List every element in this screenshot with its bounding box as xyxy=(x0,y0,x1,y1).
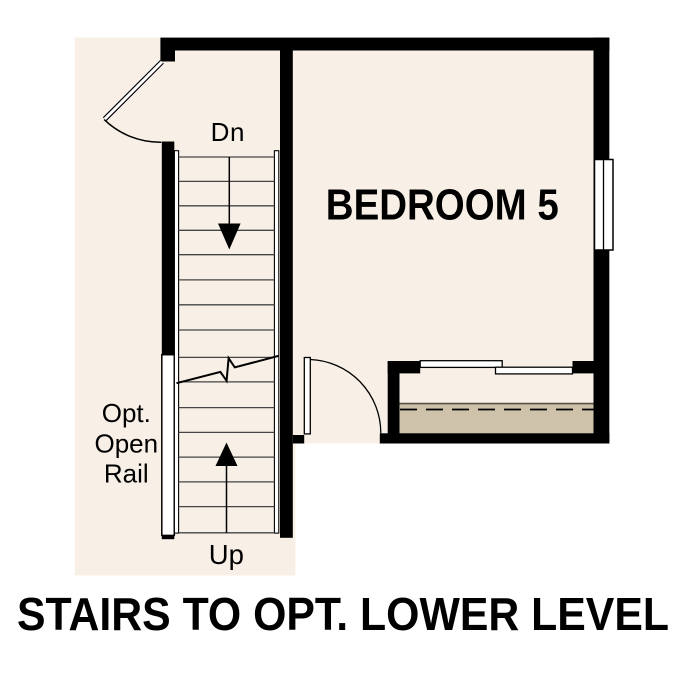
svg-text:Dn: Dn xyxy=(211,117,245,147)
svg-text:Open: Open xyxy=(94,429,158,459)
svg-text:Opt.: Opt. xyxy=(102,398,151,428)
svg-text:Up: Up xyxy=(209,539,244,570)
svg-text:Rail: Rail xyxy=(104,458,149,488)
svg-text:BEDROOM 5: BEDROOM 5 xyxy=(326,182,559,230)
svg-text:STAIRS TO OPT. LOWER LEVEL: STAIRS TO OPT. LOWER LEVEL xyxy=(17,588,669,640)
